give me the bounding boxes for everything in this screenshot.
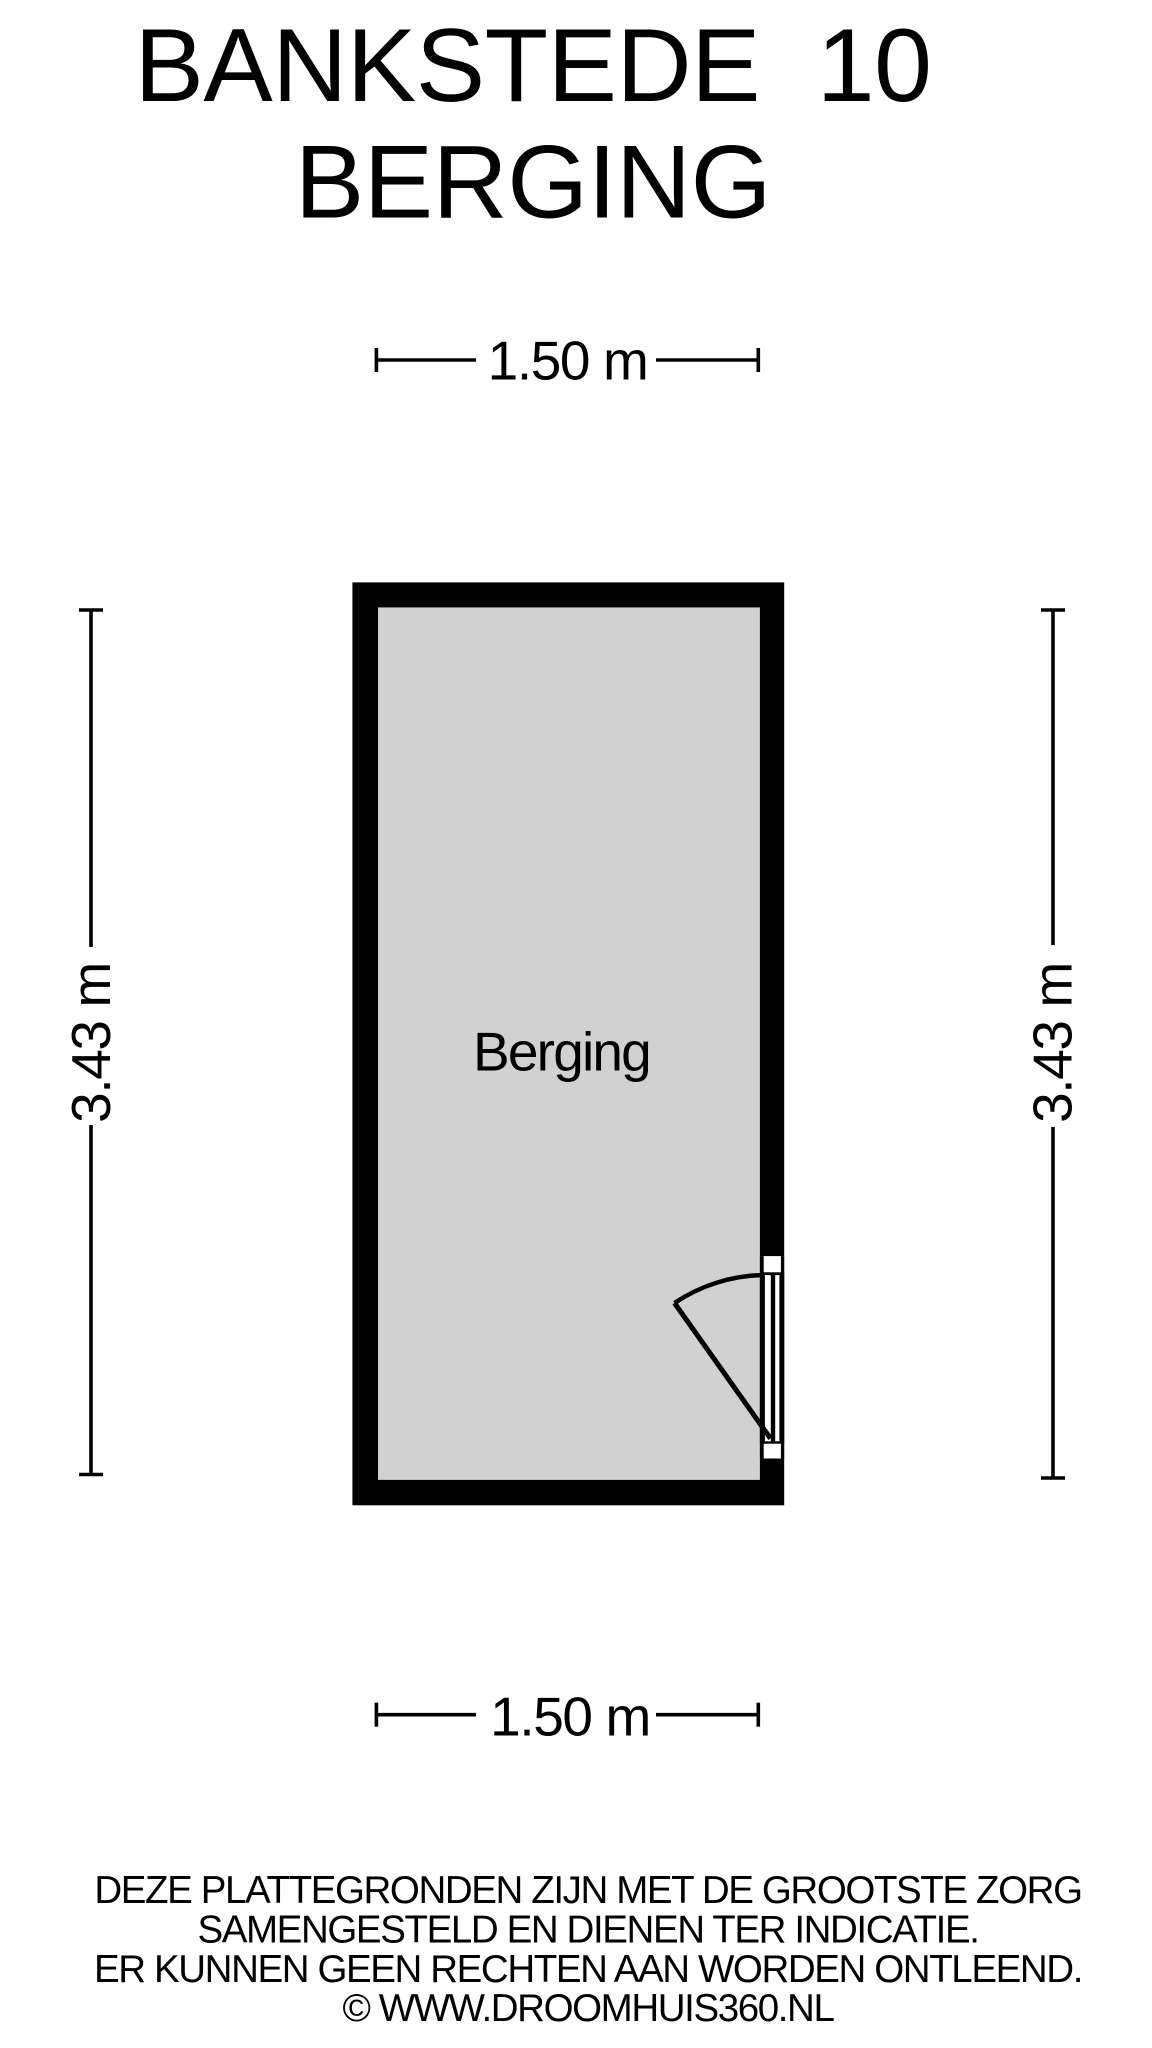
svg-text:1.50 m: 1.50 m [488,330,648,392]
svg-text:ER KUNNEN GEEN RECHTEN AAN WOR: ER KUNNEN GEEN RECHTEN AAN WORDEN ONTLEE… [94,1948,1082,1991]
svg-text:3.43 m: 3.43 m [1022,963,1084,1123]
svg-text:SAMENGESTELD EN DIENEN TER IND: SAMENGESTELD EN DIENEN TER INDICATIE. [197,1908,978,1951]
svg-text:Berging: Berging [473,1020,650,1082]
svg-text:DEZE PLATTEGRONDEN ZIJN MET DE: DEZE PLATTEGRONDEN ZIJN MET DE GROOTSTE … [94,1869,1081,1912]
svg-text:1.50 m: 1.50 m [490,1686,650,1748]
svg-text:BANKSTEDE 10: BANKSTEDE 10 [135,8,932,124]
svg-text:3.43 m: 3.43 m [60,963,122,1123]
svg-text:© WWW.DROOMHUIS360.NL: © WWW.DROOMHUIS360.NL [343,1987,835,2030]
svg-text:BERGING: BERGING [295,125,771,241]
